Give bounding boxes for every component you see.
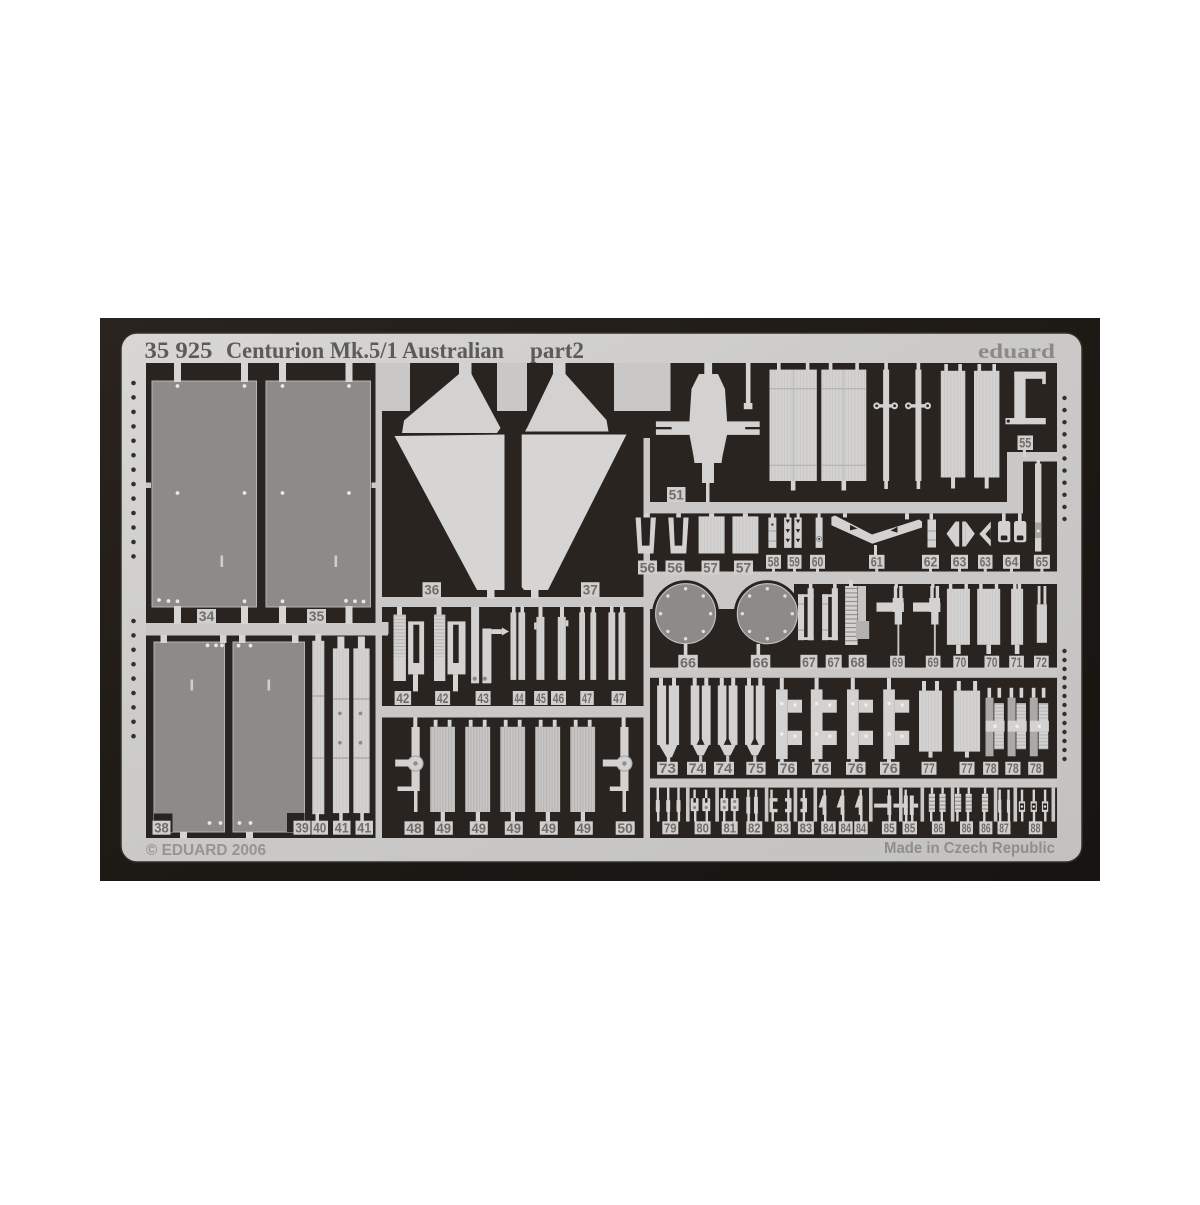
svg-text:63: 63 [980,555,991,570]
svg-text:84: 84 [840,821,851,835]
svg-text:46: 46 [553,691,565,706]
svg-text:81: 81 [723,821,736,835]
svg-text:76: 76 [848,761,865,776]
svg-text:41: 41 [357,821,371,836]
svg-text:38: 38 [154,821,169,836]
svg-text:86: 86 [981,821,991,835]
svg-text:76: 76 [814,761,830,776]
svg-text:74: 74 [689,761,705,776]
svg-text:85: 85 [904,821,915,835]
svg-text:65: 65 [1036,555,1049,570]
svg-text:eduard: eduard [978,339,1055,363]
svg-text:44: 44 [515,691,524,706]
svg-text:82: 82 [748,821,761,835]
svg-text:50: 50 [617,821,633,836]
svg-text:88: 88 [1031,821,1041,835]
svg-text:62: 62 [924,555,938,570]
svg-text:57: 57 [736,560,752,575]
svg-text:70: 70 [986,655,997,670]
svg-text:66: 66 [680,656,697,671]
svg-text:42: 42 [437,691,449,706]
svg-text:77: 77 [923,761,935,776]
svg-text:48: 48 [406,821,422,836]
svg-text:86: 86 [934,821,944,835]
svg-text:49: 49 [507,821,522,836]
svg-text:76: 76 [780,761,796,776]
svg-text:40: 40 [313,821,326,836]
svg-text:73: 73 [659,761,677,776]
svg-text:69: 69 [892,655,903,670]
svg-text:57: 57 [703,560,718,575]
svg-text:76: 76 [882,761,899,776]
svg-text:35: 35 [309,609,325,624]
svg-text:39: 39 [295,821,309,836]
svg-text:75: 75 [748,761,764,776]
svg-text:© EDUARD 2006: © EDUARD 2006 [146,842,266,859]
svg-text:Centurion Mk.5/1 Australian: Centurion Mk.5/1 Australian [226,338,504,364]
svg-text:49: 49 [437,821,452,836]
svg-text:47: 47 [582,691,592,706]
svg-text:66: 66 [753,656,770,671]
svg-text:49: 49 [542,821,557,836]
svg-text:84: 84 [856,821,866,835]
svg-text:45: 45 [536,691,546,706]
svg-text:63: 63 [953,555,967,570]
svg-text:84: 84 [823,821,834,835]
svg-text:56: 56 [640,560,656,575]
svg-text:69: 69 [928,655,939,670]
svg-text:83: 83 [776,821,789,835]
svg-text:37: 37 [583,583,598,598]
svg-text:55: 55 [1019,436,1031,451]
svg-text:49: 49 [577,821,592,836]
svg-text:80: 80 [696,821,709,835]
svg-text:83: 83 [800,821,813,835]
svg-text:59: 59 [789,555,800,570]
svg-text:87: 87 [999,821,1009,835]
svg-text:47: 47 [613,691,624,706]
svg-text:67: 67 [802,655,816,670]
svg-text:77: 77 [961,761,973,776]
svg-text:70: 70 [955,655,966,670]
svg-text:67: 67 [827,655,840,670]
svg-text:36: 36 [424,583,439,598]
svg-text:78: 78 [985,761,997,776]
svg-text:64: 64 [1005,555,1019,570]
svg-text:86: 86 [962,821,972,835]
svg-text:74: 74 [716,761,733,776]
svg-text:41: 41 [335,821,349,836]
svg-text:49: 49 [472,821,487,836]
svg-text:43: 43 [477,691,489,706]
svg-text:71: 71 [1011,655,1023,670]
svg-text:34: 34 [199,609,215,624]
svg-text:Made in Czech Republic: Made in Czech Republic [884,840,1055,857]
svg-text:78: 78 [1007,761,1019,776]
svg-text:85: 85 [884,821,895,835]
svg-text:72: 72 [1036,655,1047,670]
svg-text:51: 51 [669,487,684,502]
svg-text:35 925: 35 925 [145,338,213,364]
svg-text:56: 56 [667,560,683,575]
svg-text:part2: part2 [530,338,584,364]
svg-text:68: 68 [850,655,865,670]
svg-text:79: 79 [664,821,677,835]
svg-text:60: 60 [812,555,824,570]
svg-text:42: 42 [396,691,409,706]
svg-text:61: 61 [871,555,883,570]
svg-text:58: 58 [768,555,780,570]
svg-text:78: 78 [1030,761,1042,776]
